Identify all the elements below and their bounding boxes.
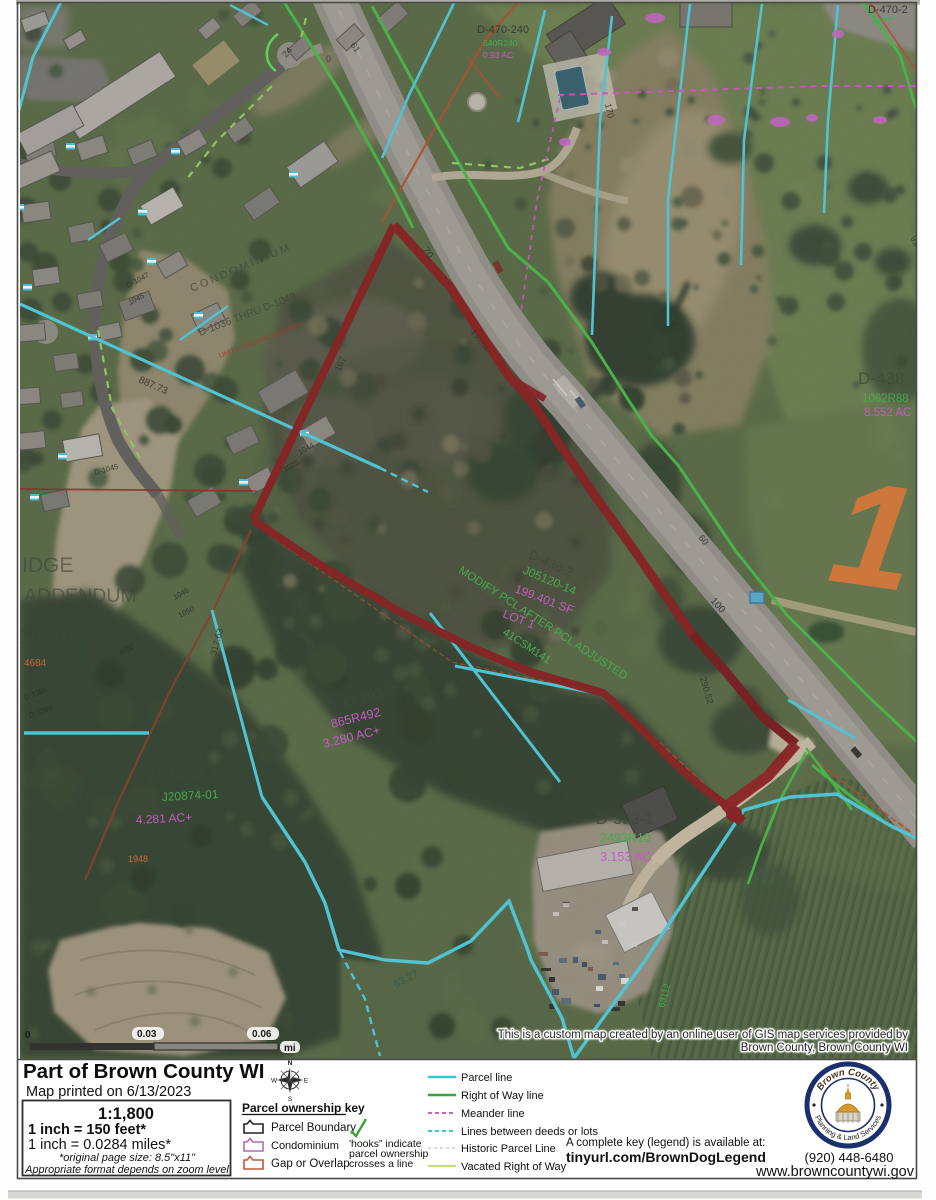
svg-text:crosses a line: crosses a line xyxy=(349,1158,413,1170)
svg-text:0: 0 xyxy=(326,54,331,64)
svg-text:IDGE: IDGE xyxy=(22,554,73,577)
svg-text:4.281 AC+: 4.281 AC+ xyxy=(135,810,192,827)
svg-text:ADDENDUM: ADDENDUM xyxy=(24,585,137,607)
svg-text:1948: 1948 xyxy=(128,854,148,864)
svg-text:(920) 448-6480: (920) 448-6480 xyxy=(805,1150,894,1165)
svg-text:3.153 AC: 3.153 AC xyxy=(600,850,651,864)
svg-text:*original page size: 8.5"x11": *original page size: 8.5"x11" xyxy=(59,1152,196,1164)
svg-text:A complete key (legend) is ava: A complete key (legend) is available at: xyxy=(566,1137,765,1149)
svg-text:D-470-240: D-470-240 xyxy=(477,24,529,36)
svg-text:www.browncountywi.gov: www.browncountywi.gov xyxy=(755,1164,915,1180)
svg-text:D-438: D-438 xyxy=(858,369,904,388)
svg-text:1062R88: 1062R88 xyxy=(862,393,909,405)
svg-text:Vacated Right of Way: Vacated Right of Way xyxy=(461,1161,567,1173)
svg-text:4684: 4684 xyxy=(24,658,47,669)
svg-text:1:1,800: 1:1,800 xyxy=(98,1105,154,1123)
svg-text:46R2: 46R2 xyxy=(872,16,893,26)
svg-text:Parcel line: Parcel line xyxy=(461,1072,512,1084)
svg-text:Condominium: Condominium xyxy=(271,1140,339,1152)
svg-text:0.93 AC: 0.93 AC xyxy=(483,50,513,60)
svg-text:0.03: 0.03 xyxy=(137,1029,157,1040)
svg-text:0-1401: 0-1401 xyxy=(16,627,77,649)
svg-text:Part of Brown County WI: Part of Brown County WI xyxy=(23,1060,264,1083)
svg-text:2493R10: 2493R10 xyxy=(600,831,651,845)
svg-text:Map printed on 6/13/2023: Map printed on 6/13/2023 xyxy=(26,1084,191,1100)
svg-text:Parcel Boundary: Parcel Boundary xyxy=(271,1122,356,1134)
svg-text:Parcel ownership key: Parcel ownership key xyxy=(242,1101,365,1115)
svg-text:J20874-01: J20874-01 xyxy=(161,787,219,804)
svg-text:N: N xyxy=(288,1060,293,1067)
svg-text:D-470-2: D-470-2 xyxy=(868,4,908,16)
svg-text:Right of Way line: Right of Way line xyxy=(461,1090,544,1102)
svg-text:0.06: 0.06 xyxy=(252,1029,272,1040)
svg-text:Gap or Overlap: Gap or Overlap xyxy=(271,1158,350,1170)
svg-text:Appropriate format depends on: Appropriate format depends on zoom level xyxy=(24,1164,229,1176)
svg-text:D-393-1: D-393-1 xyxy=(596,811,654,828)
svg-text:W: W xyxy=(271,1078,278,1085)
svg-text:1 inch = 0.0284 miles*: 1 inch = 0.0284 miles* xyxy=(28,1137,171,1153)
svg-text:tinyurl.com/BrownDogLegend: tinyurl.com/BrownDogLegend xyxy=(566,1149,766,1165)
svg-text:mi: mi xyxy=(284,1043,296,1054)
svg-text:Brown County, Brown County WI: Brown County, Brown County WI xyxy=(741,1042,908,1054)
svg-text:0: 0 xyxy=(25,1030,31,1041)
svg-text:640R240: 640R240 xyxy=(483,38,518,48)
svg-text:E: E xyxy=(304,1078,309,1085)
svg-text:Historic Parcel Line: Historic Parcel Line xyxy=(461,1143,556,1155)
svg-text:8.552 AC: 8.552 AC xyxy=(864,407,911,419)
svg-text:Meander line: Meander line xyxy=(461,1108,525,1120)
svg-text:This is a custom map created b: This is a custom map created by an onlin… xyxy=(498,1029,909,1041)
svg-text:1 inch = 150 feet*: 1 inch = 150 feet* xyxy=(28,1122,146,1138)
